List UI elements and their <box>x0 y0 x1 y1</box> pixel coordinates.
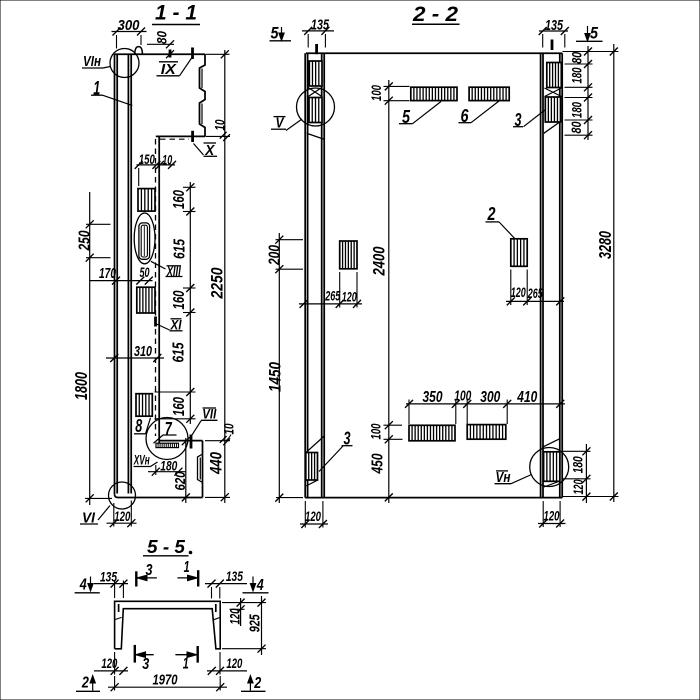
svg-text:100: 100 <box>454 389 471 405</box>
svg-text:2: 2 <box>81 674 89 691</box>
svg-text:265: 265 <box>527 286 543 301</box>
svg-text:2250: 2250 <box>207 267 226 299</box>
svg-text:615: 615 <box>171 239 188 259</box>
svg-text:135: 135 <box>100 568 117 584</box>
svg-text:2: 2 <box>487 204 496 224</box>
svg-text:150: 150 <box>139 152 155 167</box>
svg-text:300: 300 <box>480 389 500 406</box>
svg-text:180: 180 <box>570 456 586 473</box>
svg-text:2: 2 <box>253 675 261 692</box>
svg-text:80: 80 <box>569 121 584 133</box>
svg-text:615: 615 <box>171 342 188 362</box>
svg-text:200: 200 <box>266 245 283 266</box>
svg-text:50: 50 <box>140 265 150 280</box>
svg-text:120: 120 <box>544 508 560 524</box>
svg-text:100: 100 <box>369 423 384 439</box>
svg-text:180: 180 <box>569 67 585 83</box>
svg-text:4: 4 <box>256 577 264 594</box>
svg-text:120: 120 <box>226 655 242 671</box>
svg-text:3: 3 <box>142 656 149 673</box>
svg-text:925: 925 <box>248 614 264 633</box>
svg-text:300: 300 <box>118 17 141 34</box>
svg-text:5: 5 <box>271 24 279 43</box>
svg-text:440: 440 <box>208 451 226 474</box>
svg-text:120: 120 <box>101 655 117 671</box>
svg-text:3: 3 <box>146 562 153 579</box>
svg-text:80: 80 <box>154 31 169 44</box>
svg-text:XVн: XVн <box>133 453 150 468</box>
svg-text:1: 1 <box>183 656 189 673</box>
svg-text:120: 120 <box>114 508 130 524</box>
svg-text:170: 170 <box>99 266 116 282</box>
svg-text:10: 10 <box>162 153 172 168</box>
svg-text:1 - 1: 1 - 1 <box>155 2 197 25</box>
svg-text:1450: 1450 <box>265 362 284 392</box>
svg-text:120: 120 <box>342 289 357 304</box>
svg-text:1: 1 <box>184 559 190 576</box>
svg-text:2400: 2400 <box>370 246 389 276</box>
svg-text:1970: 1970 <box>153 672 178 689</box>
svg-text:180: 180 <box>160 458 177 474</box>
svg-text:7: 7 <box>165 419 173 439</box>
svg-text:5: 5 <box>590 24 598 43</box>
svg-text:1800: 1800 <box>71 372 91 400</box>
svg-text:100: 100 <box>369 85 384 101</box>
svg-text:135: 135 <box>226 568 243 584</box>
svg-text:135: 135 <box>311 16 329 33</box>
svg-text:120: 120 <box>226 608 242 624</box>
svg-text:250: 250 <box>77 230 94 251</box>
svg-text:160: 160 <box>171 190 188 209</box>
svg-text:265: 265 <box>325 288 341 303</box>
svg-text:350: 350 <box>423 389 443 406</box>
svg-text:180: 180 <box>568 102 584 118</box>
svg-text:135: 135 <box>545 17 563 34</box>
svg-text:160: 160 <box>171 290 188 309</box>
svg-text:4: 4 <box>79 577 87 594</box>
svg-text:3280: 3280 <box>595 231 615 259</box>
svg-text:10: 10 <box>212 119 227 130</box>
svg-text:80: 80 <box>570 51 585 63</box>
svg-text:310: 310 <box>134 344 152 360</box>
svg-text:450: 450 <box>370 453 387 474</box>
svg-text:410: 410 <box>517 389 538 406</box>
svg-text:160: 160 <box>171 397 188 416</box>
svg-text:1: 1 <box>93 78 100 99</box>
svg-text:120: 120 <box>570 479 586 494</box>
svg-text:120: 120 <box>511 285 526 300</box>
svg-text:2 - 2: 2 - 2 <box>412 3 458 26</box>
svg-text:620: 620 <box>172 471 189 490</box>
svg-text:10: 10 <box>221 423 236 434</box>
svg-text:120: 120 <box>305 508 321 524</box>
svg-text:5 - 5: 5 - 5 <box>147 537 186 557</box>
svg-text:8: 8 <box>135 416 142 436</box>
